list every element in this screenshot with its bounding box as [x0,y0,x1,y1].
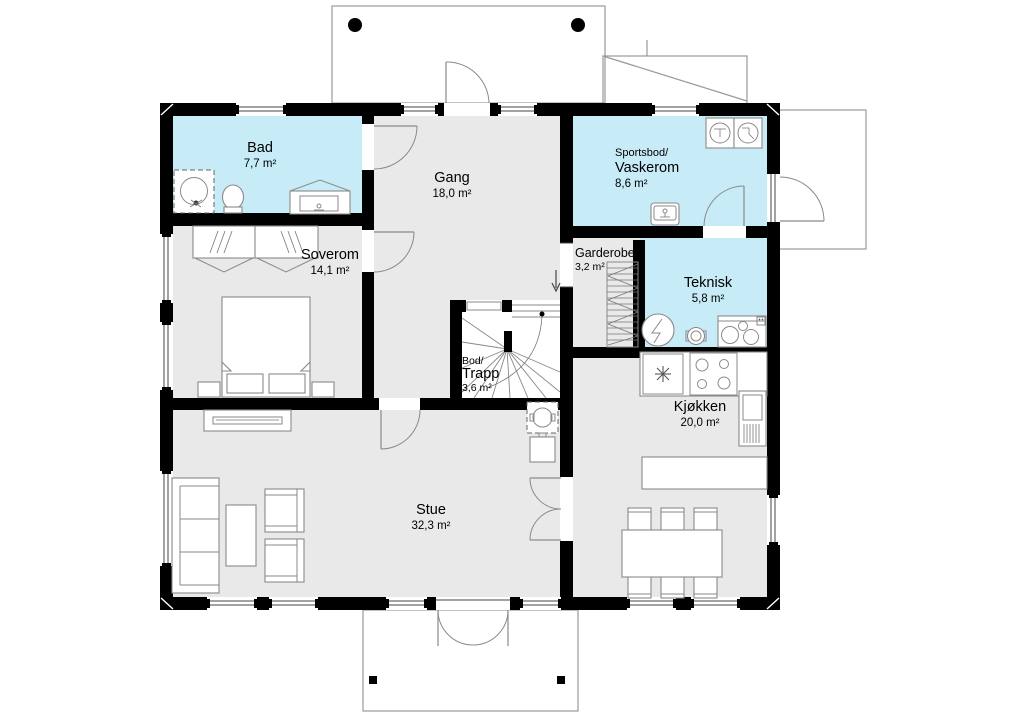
room-label-soverom: Soverom [301,247,359,263]
water-heater-icon [642,314,674,346]
tv-bench-icon [204,410,291,431]
window [232,103,290,116]
washing-machine-icon [706,118,734,148]
room-area-soverom: 14,1 m² [311,265,350,277]
room-area-vaskerom: 8,6 m² [615,178,648,190]
shower-icon [174,170,214,213]
stair-walk-start [540,312,545,317]
double-bed-icon [222,297,310,397]
dining-chair-icon [628,508,651,530]
nightstand-icon [312,382,334,397]
window [160,230,173,307]
stair-newel [504,331,512,352]
window [203,597,261,610]
room-area-kjokken: 20,0 m² [681,417,720,429]
terrace-post [369,676,377,684]
room-area-gang: 18,0 m² [433,188,472,200]
room-area-garderobe: 3,2 m² [575,261,605,273]
dining-chair-icon [694,508,717,530]
fridge-icon [739,391,766,446]
wood-stove-icon [527,402,558,462]
window [160,318,173,394]
side-terrace [774,110,866,249]
top-porch [332,6,605,103]
dryer-icon [734,118,762,148]
ventilation-unit-icon [718,316,766,347]
nightstand-icon [198,382,220,397]
window [516,597,565,610]
room-label-trapp-line2: Trapp [462,366,499,382]
room-label-stue: Stue [416,502,446,518]
dining-chair-icon [694,576,717,598]
porch-post [348,18,362,32]
utility-sink-icon [651,203,679,225]
kitchen-island-counter [642,457,767,489]
floor-plan-drawing: Bad 7,7 m² Gang 18,0 m² Sportsbod/ Vaske… [0,0,1018,720]
room-stue-floor [173,404,573,597]
window [648,103,703,116]
room-label-gang: Gang [434,170,469,186]
floor-plan-page: Bad 7,7 m² Gang 18,0 m² Sportsbod/ Vaske… [0,0,1018,720]
bottom-terrace [363,610,578,711]
room-label-vaskerom-line2: Vaskerom [615,160,679,176]
dining-chair-icon [628,576,651,598]
armchair-icon [265,489,304,532]
room-area-trapp: 3,6 m² [462,382,492,394]
window [623,597,680,610]
room-area-stue: 32,3 m² [412,520,451,532]
window [494,103,541,116]
window [265,597,322,610]
window [397,103,442,116]
terrace-post [557,676,565,684]
window [160,467,173,570]
porch-post [571,18,585,32]
dining-chair-icon [661,576,684,598]
room-label-kjokken: Kjøkken [674,399,726,415]
room-label-vaskerom-line1: Sportsbod/ [615,147,669,159]
room-label-teknisk: Teknisk [684,275,733,291]
room-label-garderobe: Garderobe [575,246,635,260]
coffee-table-icon [226,505,256,566]
window [687,597,744,610]
room-label-bad: Bad [247,140,273,156]
armchair-icon [265,539,304,582]
bod-door [466,300,502,312]
dining-chair-icon [661,508,684,530]
garderobe-opening [560,243,573,287]
room-area-bad: 7,7 m² [244,158,277,170]
toilet-icon [223,185,244,213]
room-area-teknisk: 5,8 m² [692,293,725,305]
window [767,491,780,549]
dining-table-icon [622,530,722,577]
dining-set [622,508,722,598]
roof-overhang-outline [603,40,747,103]
window [382,597,431,610]
sofa-icon [172,478,219,593]
